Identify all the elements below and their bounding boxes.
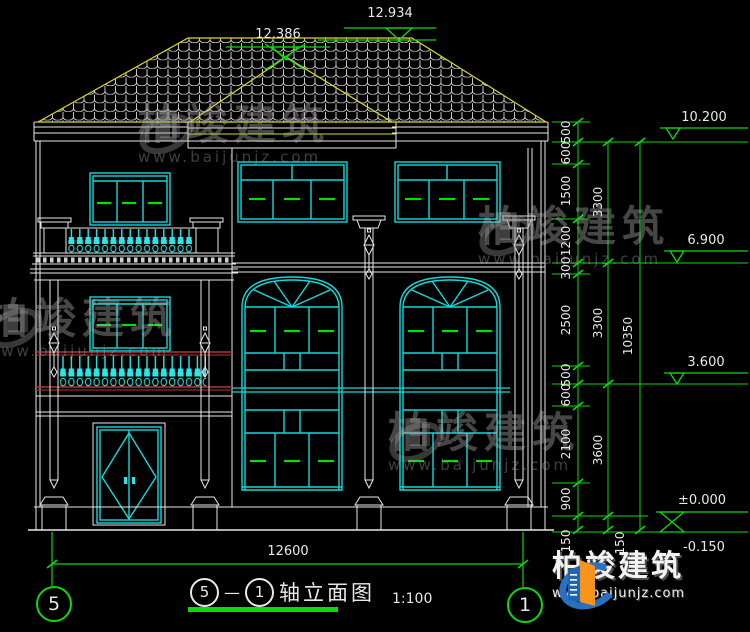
- title-name: 轴立面图: [279, 577, 375, 607]
- axis-bubble-1: 1: [507, 587, 543, 623]
- dim-label: 300: [559, 246, 573, 290]
- window-f2-center: [238, 162, 347, 222]
- level-label-main-ridge: 12.934: [344, 6, 436, 21]
- dim-label: 900: [559, 477, 573, 521]
- title-axis-circle-from: 5: [190, 578, 219, 607]
- level-label-parapet: 10.200: [660, 110, 748, 125]
- level-label-first-floor: 3.600: [664, 355, 748, 370]
- dim-label: 1500: [559, 169, 573, 213]
- door-handle-left: [124, 477, 127, 484]
- pilaster-left-inner: [191, 280, 219, 530]
- balustrade-f1: [60, 356, 206, 387]
- elevation-svg: [0, 0, 750, 632]
- title-underline: [188, 607, 338, 612]
- dim-label: 3600: [591, 428, 605, 472]
- window-f2-left: [90, 173, 170, 225]
- entry-door: [93, 423, 165, 525]
- left-cornice: [30, 253, 238, 280]
- pilaster-left-outer: [40, 280, 68, 530]
- drawing-canvas: 柏竣建筑 www.baijunjz.com 柏竣建筑 www.baijunjz.…: [0, 0, 750, 632]
- first-floor-band: [36, 388, 510, 416]
- dim-label: 2100: [559, 422, 573, 466]
- company-logo: 柏竣建筑 www.baijunjz.com: [552, 552, 685, 600]
- level-label-zero: ±0.000: [656, 493, 748, 508]
- base-course: [28, 507, 554, 530]
- title-dash: —: [224, 583, 240, 602]
- arched-window-right: [400, 277, 500, 490]
- door-handle-right: [132, 477, 135, 484]
- dimension-chain-right: [552, 118, 748, 534]
- level-label-second-floor: 6.900: [664, 233, 748, 248]
- eave-band: [34, 122, 548, 148]
- balustrade-f2: [68, 229, 192, 253]
- window-f2-right: [395, 162, 500, 222]
- roof: [38, 38, 546, 122]
- bottom-dim-label: 12600: [240, 544, 336, 559]
- title-scale: 1:100: [392, 591, 432, 607]
- company-logo-icon: [552, 552, 616, 618]
- second-floor-band: [232, 263, 545, 272]
- dim-label: 3300: [591, 180, 605, 224]
- dim-label: 600: [559, 373, 573, 417]
- axis-bubble-5: 5: [36, 586, 72, 622]
- dim-label: 2500: [559, 298, 573, 342]
- window-f1-left: [90, 297, 170, 351]
- balcony-f2: [38, 218, 223, 253]
- arched-window-left: [242, 277, 342, 490]
- drawing-title: 5 — 1 轴立面图 1:100: [190, 577, 432, 607]
- dim-label: 3300: [591, 301, 605, 345]
- dim-label: 10350: [621, 308, 635, 364]
- title-axis-circle-to: 1: [245, 578, 274, 607]
- level-label-hip-ridge: 12.386: [226, 27, 330, 42]
